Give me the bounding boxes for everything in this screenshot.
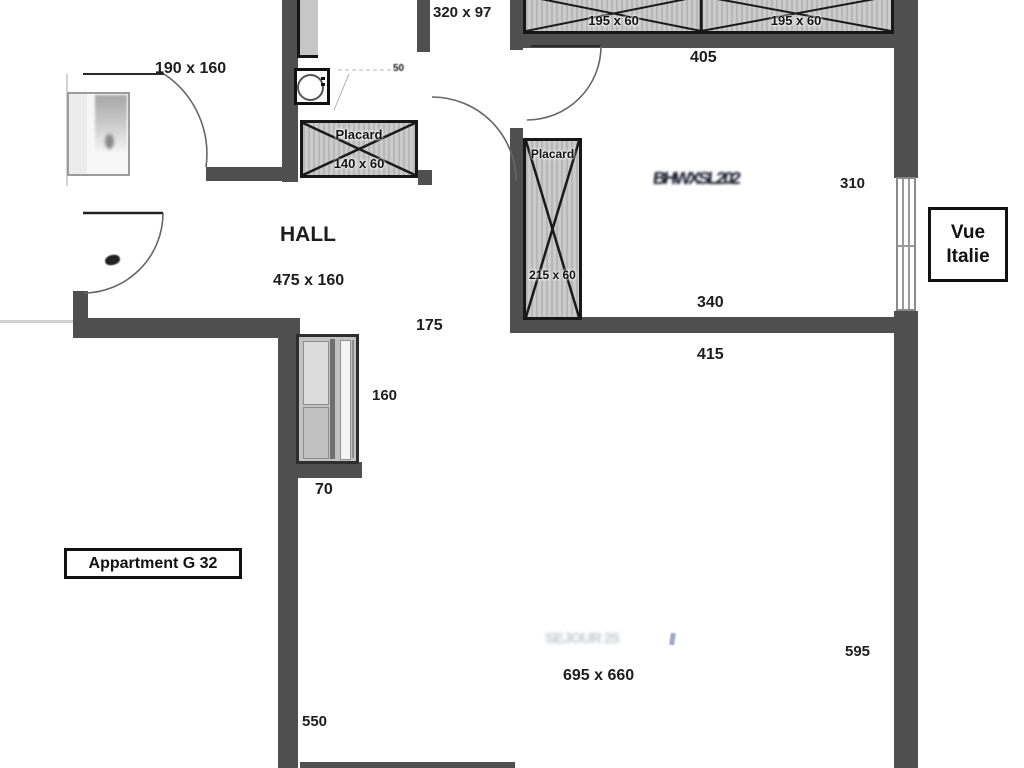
wall-under-left-window <box>298 462 362 478</box>
wall-right-top <box>894 0 918 178</box>
dim-bedroom: 190 x 160 <box>155 61 226 78</box>
wall-bathroom-top-stub <box>417 0 430 52</box>
closet-x-lines <box>526 0 891 31</box>
floor-plan: 195 x 60 195 x 60 Placard 140 x 60 Placa… <box>0 0 1024 768</box>
dim-405: 405 <box>690 50 717 67</box>
dim-310: 310 <box>840 176 865 192</box>
sink-basin-circle <box>297 74 324 101</box>
vue-line1: Vue <box>946 221 989 245</box>
window-divider <box>898 245 914 247</box>
bed-sheet-strip <box>69 94 87 174</box>
room-label-hall: HALL <box>280 224 336 246</box>
window-mullion <box>330 339 335 459</box>
dim-160: 160 <box>372 388 397 404</box>
closet-x-lines <box>526 141 579 317</box>
ink-mark <box>669 633 676 646</box>
closet-top-left-dim-label: 195 x 60 <box>588 13 639 28</box>
wall-right-lower <box>894 311 918 768</box>
sink-faucet-dot <box>321 77 325 80</box>
wall-below-top-closets <box>510 33 894 48</box>
dim-living: 695 x 660 <box>563 668 634 685</box>
closet-top-right-dim-label: 195 x 60 <box>771 13 822 28</box>
wall-left-lower-vertical <box>278 330 298 768</box>
dim-415: 415 <box>697 347 724 364</box>
closet-hall-dim-label: 140 x 60 <box>334 156 385 171</box>
vue-italie-box: Vue Italie <box>928 207 1008 282</box>
left-window <box>296 334 359 464</box>
wall-entry-placard-left <box>510 128 523 333</box>
window-pane <box>303 407 329 459</box>
right-window <box>896 177 916 311</box>
wall-hall-bottom <box>73 318 300 338</box>
door-arc-entry <box>527 46 601 120</box>
window-pane <box>303 341 329 405</box>
smudged-living-label: SEJOUR 25 <box>545 630 619 647</box>
vue-italie-text: Vue Italie <box>946 221 989 269</box>
window-pane <box>340 340 351 460</box>
closet-entry-name-label: Placard <box>531 147 574 161</box>
door-swing-overlay <box>0 0 1024 768</box>
closet-hall-name-label: Placard <box>336 127 383 142</box>
wall-faint-hall-left <box>0 320 73 323</box>
closet-hall-placard: Placard 140 x 60 <box>300 120 418 178</box>
apartment-label-box: Appartment G 32 <box>64 548 242 579</box>
window-frame-line <box>908 179 910 309</box>
dim-175: 175 <box>416 318 443 335</box>
duct-column <box>297 0 318 58</box>
door-arc-bedroom <box>164 74 207 167</box>
wall-bathroom-door-stub <box>418 170 432 185</box>
dim-50: 50 <box>393 64 404 75</box>
sink <box>294 68 330 105</box>
closet-entry-dim-label: 215 x 60 <box>529 268 576 282</box>
bed-fold-mark <box>105 134 114 149</box>
wall-bedroom-door-stub <box>206 167 284 181</box>
door-arc-hall-left <box>84 213 163 293</box>
dim-340: 340 <box>697 295 724 312</box>
faint-line-toilet <box>334 74 349 110</box>
dim-hall: 475 x 160 <box>273 273 344 290</box>
dim-70: 70 <box>315 482 333 499</box>
sink-faucet-dot2 <box>321 83 325 86</box>
smudged-room-label: BHWXSL202 <box>652 169 740 189</box>
dim-550: 550 <box>302 714 327 730</box>
window-frame-line <box>352 340 354 458</box>
bed <box>67 92 130 176</box>
window-frame-line <box>902 179 904 309</box>
dim-bathroom: 320 x 97 <box>433 5 491 21</box>
wall-bottom-partial <box>300 762 515 768</box>
door-arc-bathroom <box>432 97 516 181</box>
door-handle-mark <box>104 253 121 266</box>
closet-entry-placard: Placard 215 x 60 <box>523 138 582 320</box>
closet-top-row: 195 x 60 195 x 60 <box>523 0 894 34</box>
apartment-label-text: Appartment G 32 <box>89 555 218 573</box>
vue-line2: Italie <box>946 245 989 269</box>
dim-595: 595 <box>845 644 870 660</box>
